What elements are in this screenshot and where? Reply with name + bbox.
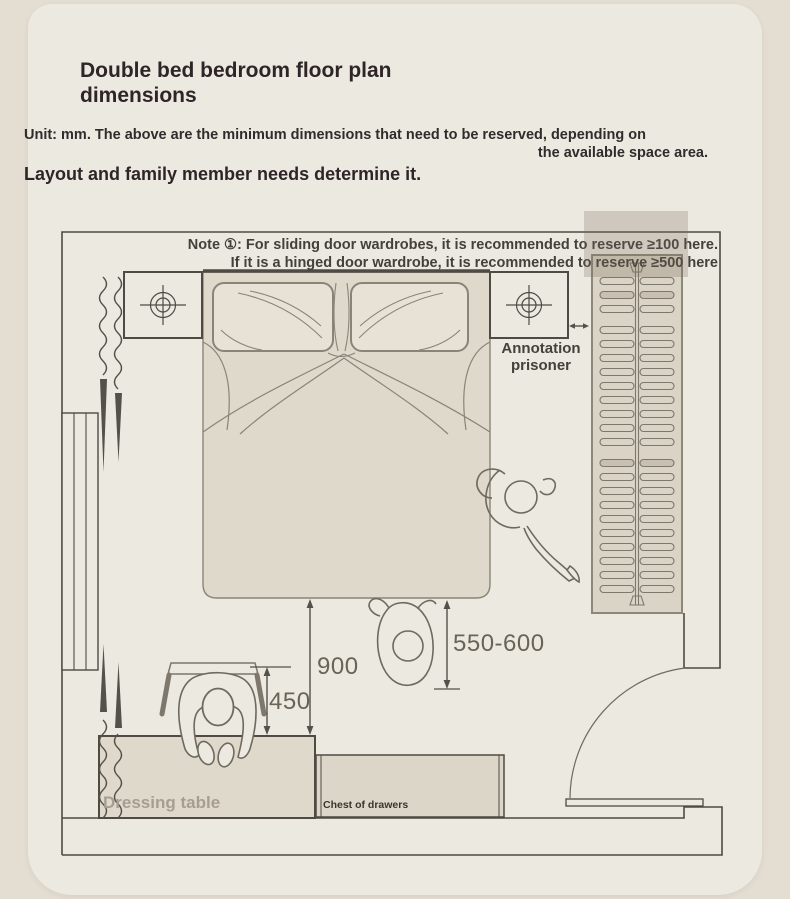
chest-of-drawers-label: Chest of drawers bbox=[323, 799, 408, 811]
left-nightstand bbox=[124, 272, 202, 338]
bed bbox=[203, 271, 490, 598]
hanger bbox=[640, 460, 674, 467]
unit-note-line1: Unit: mm. The above are the minimum dime… bbox=[24, 127, 646, 143]
layout-note: Layout and family member needs determine… bbox=[24, 164, 421, 185]
dimension-900-label: 900 bbox=[317, 653, 359, 681]
annotation-label: Annotation prisoner bbox=[492, 340, 590, 374]
door-leaf bbox=[566, 799, 703, 806]
hanger bbox=[640, 292, 674, 299]
person-standing-center-head bbox=[393, 631, 423, 661]
dimension-450-label: 450 bbox=[269, 688, 311, 716]
annotation-label-line1: Annotation bbox=[492, 340, 590, 357]
curtain-top-left bbox=[100, 277, 123, 472]
entry-door bbox=[566, 668, 703, 806]
hanger bbox=[600, 292, 634, 299]
wardrobe bbox=[592, 255, 682, 613]
hanger bbox=[600, 460, 634, 467]
right-nightstand bbox=[490, 272, 568, 338]
dimension-550-600-label: 550-600 bbox=[453, 630, 545, 658]
page: { "header": { "title": "Double bed bedro… bbox=[0, 0, 790, 899]
door-swing-arc bbox=[570, 668, 685, 798]
person-standing-wardrobe-head bbox=[505, 481, 537, 513]
person-standing-center bbox=[369, 599, 436, 686]
dressing-table-label: Dressing table bbox=[103, 793, 220, 813]
page-title: Double bed bedroom floor plan dimensions bbox=[80, 58, 438, 108]
unit-note-line2: the available space area. bbox=[24, 145, 708, 161]
annotation-arrow bbox=[569, 323, 589, 329]
annotation-label-line2: prisoner bbox=[492, 357, 590, 374]
person-standing-wardrobe bbox=[477, 469, 579, 582]
window bbox=[62, 413, 98, 670]
reserved-space-shading bbox=[584, 211, 688, 277]
person-sitting-head bbox=[203, 689, 234, 726]
